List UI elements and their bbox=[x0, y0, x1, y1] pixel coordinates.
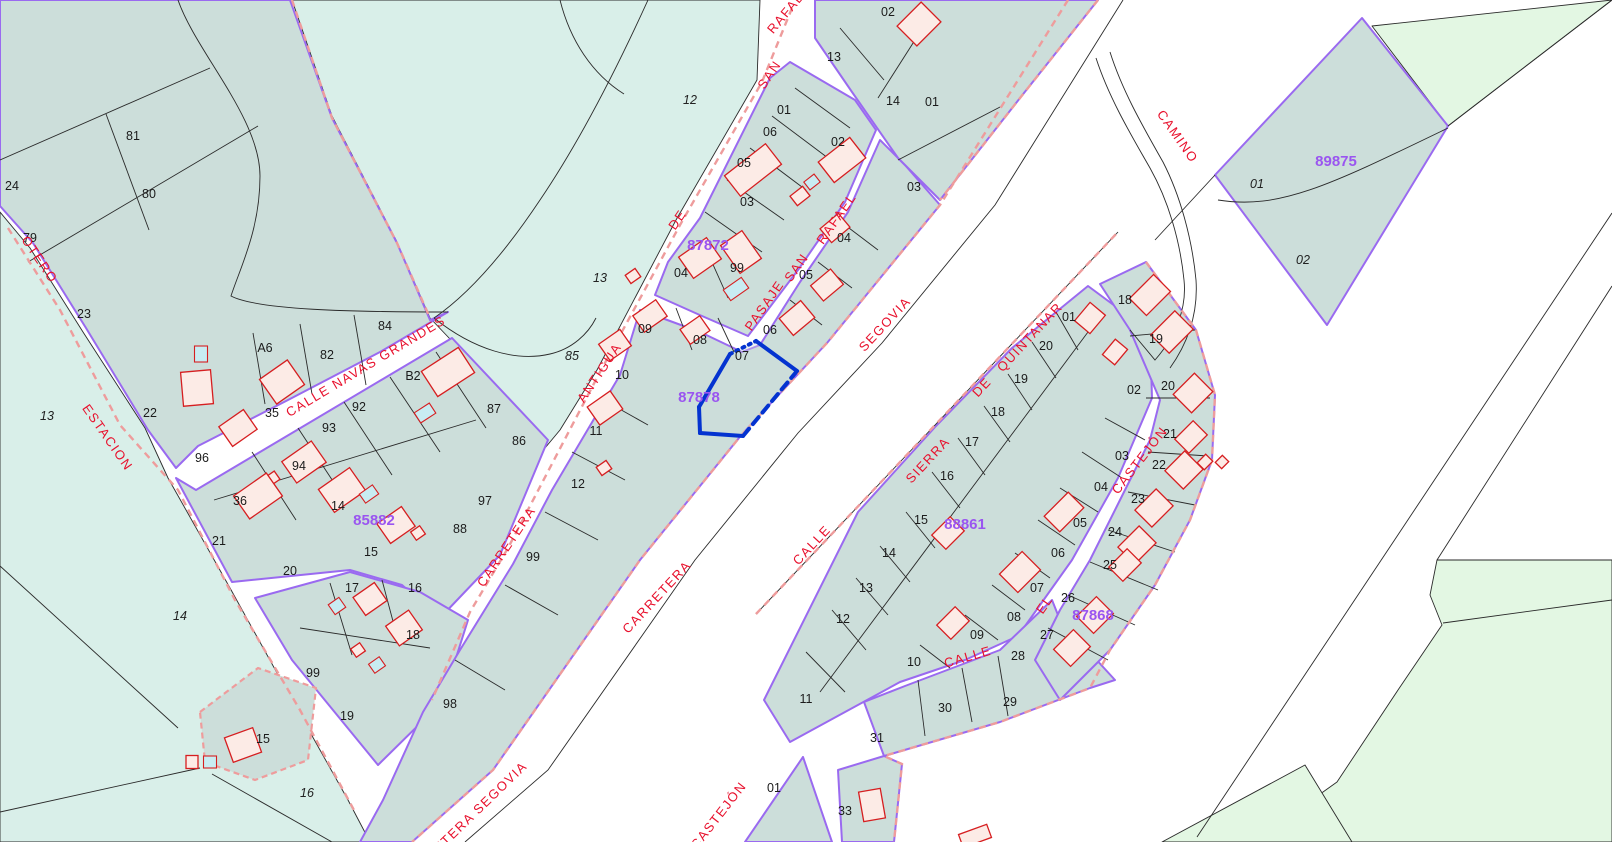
parcel-label-22[interactable]: 22 bbox=[1152, 458, 1166, 472]
parcel-label-10[interactable]: 10 bbox=[907, 655, 921, 669]
parcel-label-86[interactable]: 86 bbox=[512, 434, 526, 448]
parcel-label-12[interactable]: 12 bbox=[571, 477, 585, 491]
parcel-label-02[interactable]: 02 bbox=[881, 5, 895, 19]
parcel-label-05[interactable]: 05 bbox=[1073, 516, 1087, 530]
parcel-label-99[interactable]: 99 bbox=[306, 666, 320, 680]
parcel-label-22[interactable]: 22 bbox=[143, 406, 157, 420]
rural-parcel-label-85[interactable]: 85 bbox=[565, 349, 579, 363]
building bbox=[1215, 455, 1228, 468]
parcel-label-19[interactable]: 19 bbox=[340, 709, 354, 723]
parcel-label-06[interactable]: 06 bbox=[763, 323, 777, 337]
rural-area-bottom-wedge[interactable] bbox=[1162, 765, 1352, 842]
block-label-87868[interactable]: 87868 bbox=[1072, 607, 1114, 624]
parcel-label-04[interactable]: 04 bbox=[837, 231, 851, 245]
parcel-label-02[interactable]: 02 bbox=[831, 135, 845, 149]
cadastral-map-viewer: 24818079232296A6358284929394B28786362114… bbox=[0, 0, 1612, 842]
parcel-label-01[interactable]: 01 bbox=[925, 95, 939, 109]
parcel-label-07[interactable]: 07 bbox=[735, 349, 749, 363]
parcel-label-15[interactable]: 15 bbox=[914, 513, 928, 527]
parcel-label-99[interactable]: 99 bbox=[730, 261, 744, 275]
map-canvas[interactable]: 24818079232296A6358284929394B28786362114… bbox=[0, 0, 1612, 842]
parcel-label-88[interactable]: 88 bbox=[453, 522, 467, 536]
parcel-label-10[interactable]: 10 bbox=[615, 368, 629, 382]
parcel-label-98[interactable]: 98 bbox=[443, 697, 457, 711]
street-label-camino: CAMINO bbox=[1154, 107, 1201, 166]
parcel-label-28[interactable]: 28 bbox=[1011, 649, 1025, 663]
parcel-label-14[interactable]: 14 bbox=[886, 94, 900, 108]
parcel-label-19[interactable]: 19 bbox=[1014, 372, 1028, 386]
street-label-castejón: CASTEJÓN bbox=[688, 779, 750, 842]
parcel-label-25[interactable]: 25 bbox=[1103, 558, 1117, 572]
parcel-label-09[interactable]: 09 bbox=[970, 628, 984, 642]
parcel-label-94[interactable]: 94 bbox=[292, 459, 306, 473]
block-label-89875[interactable]: 89875 bbox=[1315, 153, 1357, 170]
block-triangle-01[interactable] bbox=[745, 757, 832, 842]
rural-parcel-label-16[interactable]: 16 bbox=[300, 786, 314, 800]
parcel-label-06[interactable]: 06 bbox=[763, 125, 777, 139]
parcel-label-13[interactable]: 13 bbox=[859, 581, 873, 595]
rural-parcel-label-14[interactable]: 14 bbox=[173, 609, 187, 623]
parcel-label-01[interactable]: 01 bbox=[767, 781, 781, 795]
parcel-label-04[interactable]: 04 bbox=[1094, 480, 1108, 494]
parcel-label-15[interactable]: 15 bbox=[364, 545, 378, 559]
street-label-calle: CALLE bbox=[790, 522, 834, 568]
parcel-label-18[interactable]: 18 bbox=[1118, 293, 1132, 307]
block-label-87878[interactable]: 87878 bbox=[678, 389, 720, 406]
parcel-label-13[interactable]: 13 bbox=[827, 50, 841, 64]
rural-parcel-label-12[interactable]: 12 bbox=[683, 93, 697, 107]
parcel-label-01[interactable]: 01 bbox=[777, 103, 791, 117]
parcel-label-26[interactable]: 26 bbox=[1061, 591, 1075, 605]
parcel-label-08[interactable]: 08 bbox=[1007, 610, 1021, 624]
parcel-label-16[interactable]: 16 bbox=[940, 469, 954, 483]
parcel-label-14[interactable]: 14 bbox=[882, 546, 896, 560]
parcel-label-23[interactable]: 23 bbox=[1131, 492, 1145, 506]
pool bbox=[195, 346, 208, 362]
parcel-label-09[interactable]: 09 bbox=[638, 322, 652, 336]
building bbox=[181, 370, 214, 406]
block-label-88861[interactable]: 88861 bbox=[944, 516, 986, 533]
parcel-label-81[interactable]: 81 bbox=[126, 129, 140, 143]
parcel-label-20[interactable]: 20 bbox=[283, 564, 297, 578]
parcel-label-27[interactable]: 27 bbox=[1040, 628, 1054, 642]
parcel-label-15[interactable]: 15 bbox=[256, 732, 270, 746]
parcel-label-96[interactable]: 96 bbox=[195, 451, 209, 465]
parcel-label-05[interactable]: 05 bbox=[737, 156, 751, 170]
street-label-rafael: RAFAEL bbox=[764, 0, 813, 36]
parcel-label-04[interactable]: 04 bbox=[674, 266, 688, 280]
building bbox=[186, 756, 198, 769]
parcel-label-A6[interactable]: A6 bbox=[257, 341, 272, 355]
selected-parcel-edge-solid bbox=[699, 407, 700, 433]
parcel-label-21[interactable]: 21 bbox=[212, 534, 226, 548]
building bbox=[859, 788, 886, 821]
parcel-label-19[interactable]: 19 bbox=[1149, 332, 1163, 346]
block-label-87872[interactable]: 87872 bbox=[687, 237, 729, 254]
parcel-label-12[interactable]: 12 bbox=[836, 612, 850, 626]
parcel-label-97[interactable]: 97 bbox=[478, 494, 492, 508]
parcel-label-93[interactable]: 93 bbox=[322, 421, 336, 435]
parcel-label-33[interactable]: 33 bbox=[838, 804, 852, 818]
rural-parcel-label-01[interactable]: 01 bbox=[1250, 177, 1264, 191]
parcel-label-24[interactable]: 24 bbox=[5, 179, 19, 193]
street-label-segovia: SEGOVIA bbox=[856, 294, 914, 355]
parcel-label-11[interactable]: 11 bbox=[590, 424, 603, 438]
parcel-label-17[interactable]: 17 bbox=[965, 435, 979, 449]
parcel-label-01[interactable]: 01 bbox=[1062, 310, 1076, 324]
parcel-label-92[interactable]: 92 bbox=[352, 400, 366, 414]
parcel-label-16[interactable]: 16 bbox=[408, 581, 422, 595]
parcel-label-02[interactable]: 02 bbox=[1127, 383, 1141, 397]
parcel-label-07[interactable]: 07 bbox=[1030, 581, 1044, 595]
parcel-label-11[interactable]: 11 bbox=[800, 692, 813, 706]
parcel-label-06[interactable]: 06 bbox=[1051, 546, 1065, 560]
rural-parcel-label-13[interactable]: 13 bbox=[593, 271, 607, 285]
parcel-label-80[interactable]: 80 bbox=[142, 187, 156, 201]
parcel-label-18[interactable]: 18 bbox=[991, 405, 1005, 419]
parcel-label-84[interactable]: 84 bbox=[378, 319, 392, 333]
parcel-label-03[interactable]: 03 bbox=[1115, 449, 1129, 463]
parcel-label-20[interactable]: 20 bbox=[1161, 379, 1175, 393]
parcel-label-24[interactable]: 24 bbox=[1108, 525, 1122, 539]
parcel-label-29[interactable]: 29 bbox=[1003, 695, 1017, 709]
parcel-label-03[interactable]: 03 bbox=[740, 195, 754, 209]
parcel-label-31[interactable]: 31 bbox=[870, 731, 884, 745]
road-right-b bbox=[1437, 286, 1612, 560]
parcel-label-23[interactable]: 23 bbox=[77, 307, 91, 321]
parcel-label-03[interactable]: 03 bbox=[907, 180, 921, 194]
parcel-label-14[interactable]: 14 bbox=[331, 499, 345, 513]
block-label-85882[interactable]: 85882 bbox=[353, 512, 395, 529]
parcel-label-B2[interactable]: B2 bbox=[405, 369, 420, 383]
pool bbox=[204, 756, 217, 768]
parcel-label-17[interactable]: 17 bbox=[345, 581, 359, 595]
parcel-label-18[interactable]: 18 bbox=[406, 628, 420, 642]
rural-parcel-label-02[interactable]: 02 bbox=[1296, 253, 1310, 267]
rural-parcel-label-13[interactable]: 13 bbox=[40, 409, 54, 423]
parcel-label-08[interactable]: 08 bbox=[693, 333, 707, 347]
parcel-label-99[interactable]: 99 bbox=[526, 550, 540, 564]
parcel-label-35[interactable]: 35 bbox=[265, 406, 279, 420]
parcel-label-87[interactable]: 87 bbox=[487, 402, 501, 416]
building bbox=[959, 824, 992, 842]
parcel-label-20[interactable]: 20 bbox=[1039, 339, 1053, 353]
parcel-label-36[interactable]: 36 bbox=[233, 494, 247, 508]
parcel-label-30[interactable]: 30 bbox=[938, 701, 952, 715]
l bbox=[1155, 175, 1215, 240]
parcel-label-82[interactable]: 82 bbox=[320, 348, 334, 362]
